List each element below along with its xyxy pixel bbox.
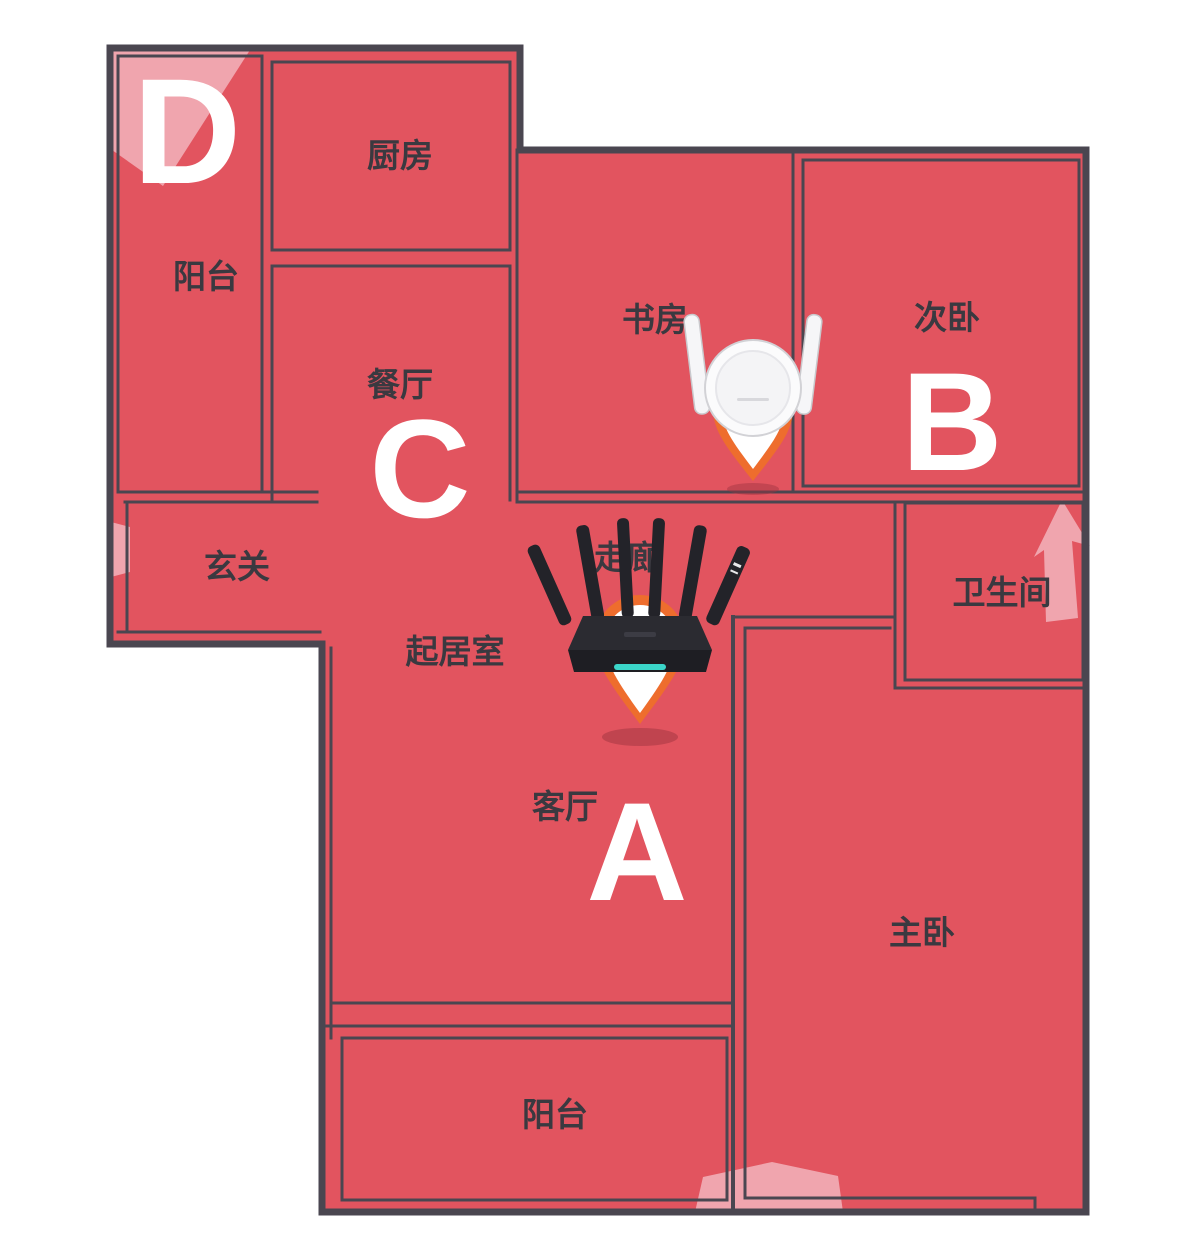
router-accent-stripe — [614, 664, 666, 670]
room-label-master: 主卧 — [889, 914, 955, 951]
room-label-study: 书房 — [622, 301, 688, 338]
room-label-bedroom2: 次卧 — [914, 299, 980, 336]
mesh-disc-inner — [716, 351, 790, 425]
wifi-heatmap-floorplan: D C B A 阳台 厨房 餐厅 书房 次卧 玄关 走廊 起居室 卫生间 客厅 … — [0, 0, 1200, 1249]
zone-letter-d: D — [133, 47, 241, 215]
pin-shadow — [727, 483, 779, 495]
router-logo-mark — [624, 632, 656, 637]
room-label-balcony-bottom: 阳台 — [522, 1096, 588, 1133]
room-label-balcony-top: 阳台 — [173, 258, 239, 295]
room-label-living: 起居室 — [406, 633, 505, 670]
zone-letter-a: A — [586, 773, 687, 930]
room-label-kitchen: 厨房 — [367, 137, 433, 174]
pin-shadow — [602, 728, 678, 746]
room-label-entry: 玄关 — [204, 548, 270, 585]
zone-letter-b: B — [901, 343, 1002, 500]
room-label-dining: 餐厅 — [367, 366, 433, 403]
room-label-bathroom: 卫生间 — [953, 574, 1052, 611]
floorplan-svg: D C B A 阳台 厨房 餐厅 书房 次卧 玄关 走廊 起居室 卫生间 客厅 … — [0, 0, 1200, 1249]
mesh-logo-mark — [737, 398, 769, 401]
room-label-parlor: 客厅 — [532, 788, 598, 825]
zone-letter-c: C — [369, 390, 470, 547]
